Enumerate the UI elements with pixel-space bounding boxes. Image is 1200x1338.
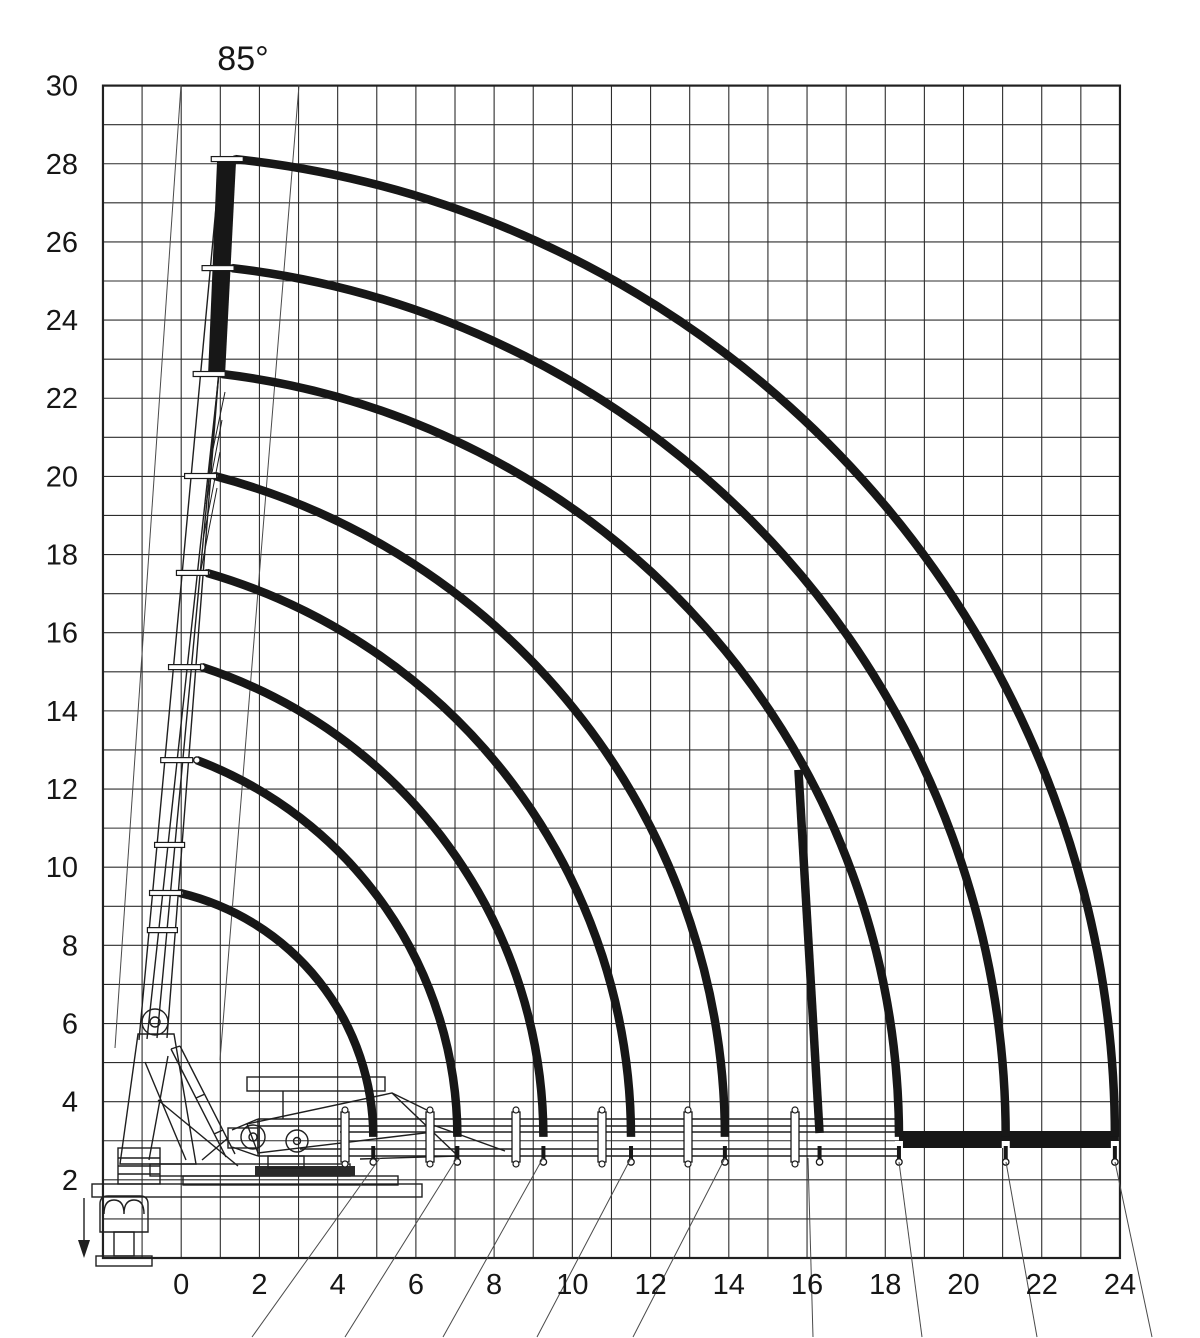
grid	[103, 86, 1120, 1258]
pin-knob	[816, 1159, 822, 1165]
limit-line	[798, 770, 819, 1133]
jack-rod	[114, 1232, 134, 1256]
boom-clamp	[426, 1107, 434, 1167]
boom-clamp	[341, 1107, 349, 1167]
pin-bar	[818, 1146, 822, 1160]
x-tick-label: 16	[791, 1269, 823, 1301]
callout-leader-line	[633, 1158, 725, 1337]
column-brace	[145, 1056, 238, 1166]
boom-clamp	[684, 1107, 692, 1167]
pin-bar	[629, 1146, 633, 1160]
boom-edge-left	[139, 164, 220, 1040]
clamp-bar	[341, 1112, 349, 1162]
outrigger-jack	[100, 1196, 148, 1232]
boom-joint-bar	[185, 474, 217, 479]
curve-end-pin	[895, 1141, 903, 1165]
y-tick-label: 28	[46, 149, 78, 181]
x-tick-label: 10	[556, 1269, 588, 1301]
clamp-knob-bottom	[427, 1161, 433, 1167]
boom-joint-bar	[161, 758, 193, 763]
callout-leader-line	[1006, 1162, 1037, 1337]
y-tick-label: 2	[62, 1165, 78, 1197]
reach-curve-extension-3	[202, 667, 544, 1137]
boom-joint-bar	[176, 570, 208, 575]
clamp-knob-bottom	[792, 1161, 798, 1167]
boom-body-lines	[258, 1119, 899, 1156]
angle-wedge-line	[115, 85, 181, 1048]
pin-bar	[455, 1146, 459, 1160]
x-tick-label: 14	[713, 1269, 745, 1301]
x-tick-label: 2	[251, 1269, 267, 1301]
boom-hatch	[200, 392, 225, 575]
pin-bar	[1113, 1146, 1117, 1160]
x-tick-label: 0	[173, 1269, 189, 1301]
pin-bar	[897, 1146, 901, 1160]
boom-tip-dot	[194, 757, 200, 763]
boom-joint-bar	[211, 157, 243, 162]
ground-arrow-head	[78, 1240, 90, 1258]
pin-knob	[1003, 1159, 1009, 1165]
clamp-knob-bottom	[513, 1161, 519, 1167]
clamp-knob-bottom	[342, 1161, 348, 1167]
x-tick-label: 8	[486, 1269, 502, 1301]
y-axis-labels: 30282624222018161412108642	[46, 71, 78, 1197]
y-tick-label: 12	[46, 774, 78, 806]
x-tick-label: 4	[330, 1269, 346, 1301]
y-tick-label: 30	[46, 71, 78, 103]
callout-leader-line	[537, 1158, 631, 1337]
callout-leader-line	[443, 1158, 543, 1337]
outrigger-beam	[92, 1184, 422, 1197]
y-tick-label: 14	[46, 696, 78, 728]
y-tick-label: 16	[46, 618, 78, 650]
boom-joint-bar	[169, 665, 201, 670]
y-tick-label: 10	[46, 852, 78, 884]
clamp-bar	[791, 1112, 799, 1162]
y-tick-label: 6	[62, 1009, 78, 1041]
clamp-knob-top	[599, 1107, 605, 1113]
pin-knob	[454, 1159, 460, 1165]
y-tick-label: 20	[46, 461, 78, 493]
clamp-knob-bottom	[599, 1161, 605, 1167]
boom-clamp	[512, 1107, 520, 1167]
reach-curve-extension-4	[207, 573, 631, 1137]
boom-joint-bar	[193, 372, 225, 377]
pin-bar	[371, 1146, 375, 1160]
boom-pivot-pulley	[142, 1009, 168, 1035]
x-tick-label: 12	[634, 1269, 666, 1301]
pin-bar	[541, 1146, 545, 1160]
pin-bar	[1004, 1146, 1008, 1160]
clamp-knob-top	[685, 1107, 691, 1113]
y-tick-label: 26	[46, 227, 78, 259]
clamp-bar	[684, 1112, 692, 1162]
reach-curve-extension-1	[180, 893, 373, 1137]
boom-clamp	[791, 1107, 799, 1167]
boom-joint-bar	[147, 928, 177, 933]
clamp-knob-top	[342, 1107, 348, 1113]
clamp-knob-top	[792, 1107, 798, 1113]
y-tick-label: 22	[46, 383, 78, 415]
x-axis-labels: 024681012141618202224	[173, 1269, 1136, 1301]
boom-angle-label: 85°	[217, 40, 268, 78]
curve-end-pins	[370, 1141, 1119, 1165]
clamp-bar	[598, 1112, 606, 1162]
reach-curve-extension-6	[222, 374, 899, 1137]
pin-knob	[1112, 1159, 1118, 1165]
callout-leader-line	[808, 1158, 813, 1337]
curve-end-pin	[1111, 1141, 1119, 1165]
boom-clamp	[598, 1107, 606, 1167]
clamp-bar	[426, 1112, 434, 1162]
y-tick-label: 24	[46, 305, 78, 337]
boom-joint-bar	[150, 890, 182, 895]
x-tick-label: 22	[1026, 1269, 1058, 1301]
clamp-knob-bottom	[685, 1161, 691, 1167]
clamp-bar	[512, 1112, 520, 1162]
x-tick-label: 20	[947, 1269, 979, 1301]
working-range-diagram: 024681012141618202224 302826242220181614…	[0, 0, 1200, 1338]
x-tick-label: 6	[408, 1269, 424, 1301]
clamp-knob-top	[427, 1107, 433, 1113]
boom-joint-bar	[155, 842, 185, 847]
reach-curve-extension-2	[197, 760, 458, 1137]
callout-leader-line	[899, 1162, 922, 1337]
x-tick-label: 18	[869, 1269, 901, 1301]
y-tick-label: 8	[62, 930, 78, 962]
y-tick-label: 18	[46, 540, 78, 572]
clamp-knob-top	[513, 1107, 519, 1113]
chart-svg: 024681012141618202224 302826242220181614…	[0, 0, 1200, 1338]
y-tick-label: 4	[62, 1087, 78, 1119]
pedestal-ribs	[118, 1158, 160, 1174]
pin-bar	[723, 1146, 727, 1160]
reach-curves	[180, 159, 1119, 1148]
x-tick-label: 24	[1104, 1269, 1136, 1301]
boom-joint-bar	[202, 266, 234, 271]
